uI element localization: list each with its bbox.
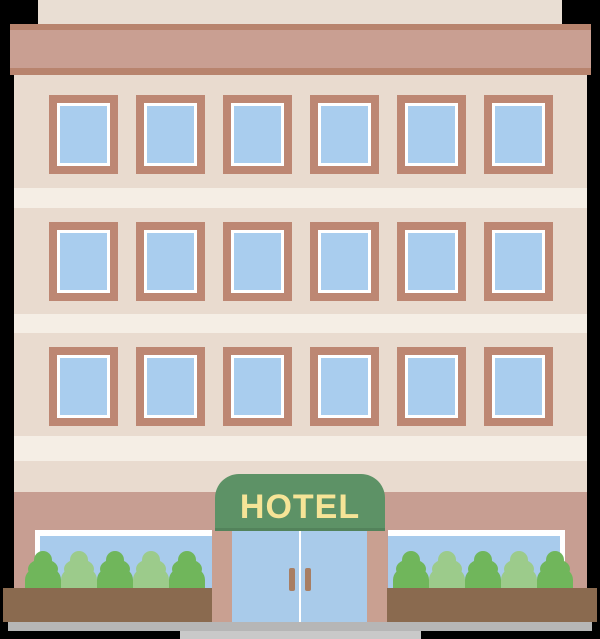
bush-icon <box>501 551 537 591</box>
window-pane <box>231 103 284 166</box>
window <box>49 95 118 174</box>
bush-icon <box>393 551 429 591</box>
door-handle-icon <box>305 568 311 591</box>
entrance-walkway <box>180 631 421 639</box>
window <box>310 95 379 174</box>
planter-box-left <box>3 588 212 622</box>
bush-row-left <box>25 551 205 591</box>
entrance-doors <box>232 531 367 622</box>
window-pane <box>492 230 545 293</box>
window <box>49 222 118 301</box>
window-row <box>14 222 587 301</box>
bush-icon <box>61 551 97 591</box>
window-row <box>14 347 587 426</box>
window-row <box>14 95 587 174</box>
window-pane <box>318 103 371 166</box>
door-right <box>301 531 368 622</box>
window-pane <box>144 355 197 418</box>
window-pane <box>57 355 110 418</box>
window <box>310 222 379 301</box>
window-pane <box>492 103 545 166</box>
window <box>397 222 466 301</box>
floor-divider-band <box>14 188 587 208</box>
window <box>136 95 205 174</box>
bush-icon <box>169 551 205 591</box>
roof-cornice <box>10 24 591 75</box>
entrance-column-right <box>367 531 387 622</box>
entrance-awning: HOTEL <box>215 474 385 531</box>
door-handle-icon <box>289 568 295 591</box>
window <box>484 222 553 301</box>
window-pane <box>231 355 284 418</box>
window <box>484 347 553 426</box>
window-pane <box>405 230 458 293</box>
window <box>223 95 292 174</box>
hotel-illustration: HOTEL <box>0 0 600 639</box>
floor-divider-band <box>14 436 587 461</box>
bush-row-right <box>393 551 573 591</box>
window-pane <box>318 230 371 293</box>
window-pane <box>405 355 458 418</box>
bush-icon <box>429 551 465 591</box>
window <box>397 95 466 174</box>
window-pane <box>405 103 458 166</box>
window <box>397 347 466 426</box>
floor-divider-band <box>14 314 587 333</box>
entrance-column-left <box>212 531 232 622</box>
window-pane <box>57 230 110 293</box>
planter-box-right <box>387 588 597 622</box>
bush-icon <box>97 551 133 591</box>
window-pane <box>57 103 110 166</box>
bush-icon <box>537 551 573 591</box>
bush-icon <box>25 551 61 591</box>
window <box>310 347 379 426</box>
window <box>484 95 553 174</box>
window <box>136 222 205 301</box>
window-pane <box>492 355 545 418</box>
bush-icon <box>465 551 501 591</box>
window-pane <box>318 355 371 418</box>
window-pane <box>144 230 197 293</box>
window <box>49 347 118 426</box>
sidewalk <box>8 622 592 631</box>
window <box>223 222 292 301</box>
window <box>223 347 292 426</box>
bush-icon <box>133 551 169 591</box>
door-left <box>232 531 299 622</box>
hotel-sign-text: HOTEL <box>240 482 360 524</box>
window <box>136 347 205 426</box>
window-pane <box>231 230 284 293</box>
window-pane <box>144 103 197 166</box>
